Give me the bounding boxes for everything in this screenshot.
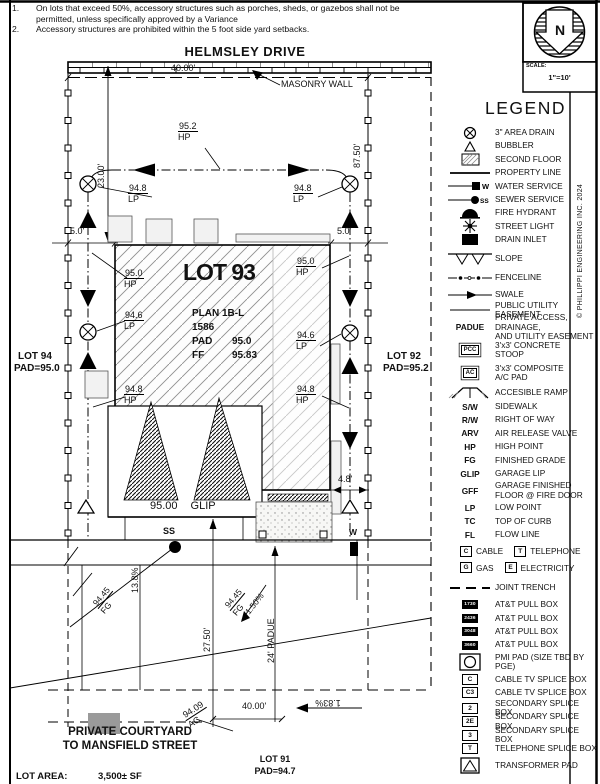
spot-hp-950-left: 95.0HP — [124, 268, 144, 289]
dim-27-50ft: 27.50' — [202, 628, 212, 652]
legend-item: R/WRIGHT OF WAY — [447, 413, 597, 426]
legend-item: FGFINISHED GRADE — [447, 453, 597, 466]
legend-item: PADUEPRIVATE ACCESS, DRAINAGE,AND UTILIT… — [447, 317, 597, 338]
legend-item-label: JOINT TRENCH — [495, 583, 556, 592]
street-name: HELMSLEY DRIVE — [150, 44, 340, 59]
legend-item-label: TELEPHONE SPLICE BOX — [495, 744, 597, 753]
legend-item: 3" AREA DRAIN — [447, 126, 597, 139]
legend-item-label: BUBBLER — [495, 141, 534, 150]
spot-hp-950-right: 95.0HP — [296, 256, 316, 277]
spot-hp-948-right: 94.8HP — [296, 384, 316, 405]
legend-item-label: SECONDARY SPLICE BOX — [495, 726, 597, 745]
legend-item-label: 3" AREA DRAIN — [495, 128, 555, 137]
legend-title: LEGEND — [485, 98, 566, 119]
slope-1-83pct: 1.83% — [305, 698, 351, 708]
dim-5ft-right: 5.0' — [337, 226, 351, 236]
legend-item-label: AT&T PULL BOX — [495, 627, 558, 636]
legend-item: AC3'x3' COMPOSITEA/C PAD — [447, 363, 597, 384]
water-service-icon: W — [447, 180, 493, 192]
legend-item: SECOND FLOOR — [447, 153, 597, 166]
legend-item-label: SIDEWALK — [495, 402, 538, 411]
legend-item: GFFGARAGE FINISHEDFLOOR @ FIRE DOOR — [447, 480, 597, 501]
legend-item-label: AT&T PULL BOX — [495, 614, 558, 623]
house-plan: PLAN 1B-L — [192, 309, 244, 319]
legend-item-label: CABLE TV SPLICE BOX — [495, 675, 587, 684]
legend-item-label: TOP OF CURB — [495, 517, 551, 526]
note-number: 2. — [12, 24, 36, 35]
bubbler-icon — [447, 140, 493, 153]
drain-inlet-icon — [447, 233, 493, 246]
legend-item: CCABLE TV SPLICE BOX — [447, 673, 597, 686]
legend-item: FENCELINE — [447, 271, 597, 286]
ramp-icon — [447, 385, 493, 399]
note-text: On lots that exceed 50%, accessory struc… — [36, 3, 436, 24]
fenceline-icon — [447, 272, 493, 284]
legend-item-label: HIGH POINT — [495, 442, 543, 451]
legend-item-label: TRANSFORMER PAD — [495, 761, 578, 770]
slope-13-8pct: 13.8% — [130, 567, 140, 593]
utility-letter-icon: C — [460, 546, 472, 557]
abbr-icon: GLIP — [447, 469, 493, 479]
abbr-icon: HP — [447, 442, 493, 452]
legend-item-label: SEWER SERVICE — [495, 195, 564, 204]
legend: LEGEND 3" AREA DRAINBUBBLERSECOND FLOORP… — [447, 126, 597, 774]
house-ff: FF95.83 — [192, 351, 204, 361]
legend-item: TRANSFORMER PAD — [447, 757, 597, 774]
spot-lp-946-right: 94.6LP — [296, 330, 316, 351]
legend-item: 2436AT&T PULL BOX — [447, 612, 597, 625]
pmi-icon — [447, 653, 493, 671]
abbr-icon: S/W — [447, 402, 493, 412]
dim-24ft-padue: 24' PADUE — [266, 618, 276, 663]
legend-item-label: SWALE — [495, 290, 524, 299]
legend-item-label: PMI PAD (SIZE TBD BY PGE) — [495, 653, 597, 672]
abbr-icon: PADUE — [447, 322, 493, 332]
legend-item-label: STREET LIGHT — [495, 222, 554, 231]
abbr-icon: LP — [447, 503, 493, 513]
legend-item: WWATER SERVICE — [447, 180, 597, 193]
legend-item-label: 3'x3' COMPOSITEA/C PAD — [495, 364, 564, 383]
legend-item: 3660AT&T PULL BOX — [447, 638, 597, 651]
abbr-icon: GFF — [447, 486, 493, 496]
lot-94-label: LOT 94PAD=95.0 — [14, 351, 60, 375]
scale-value: 1"=10' — [523, 73, 596, 82]
legend-item: SSSEWER SERVICE — [447, 193, 597, 206]
garage-lip-elevation: 95.00GLIP — [150, 501, 216, 511]
black-box-icon: 1730 — [447, 600, 493, 609]
utility-letter-icon: E — [505, 562, 517, 573]
note-2: 2. Accessory structures are prohibited w… — [12, 24, 492, 35]
water-service-label: W — [349, 527, 357, 537]
lot-area-label: LOT AREA: — [16, 772, 67, 782]
lot-92-label: LOT 92PAD=95.2 — [383, 351, 429, 375]
legend-item: 3SECONDARY SPLICE BOX — [447, 728, 597, 741]
swale-icon — [447, 289, 493, 301]
svg-text:W: W — [482, 182, 490, 191]
legend-item-label: AIR RELEASE VALVE — [495, 429, 577, 438]
legend-item-label: DRAIN INLET — [495, 235, 547, 244]
black-box-icon: 3660 — [447, 641, 493, 650]
sewer-service-label: SS — [163, 526, 175, 536]
legend-item: STREET LIGHT — [447, 220, 597, 233]
legend-item: PCC3'x3' CONCRETESTOOP — [447, 340, 597, 361]
courtyard-label: PRIVATE COURTYARD TO MANSFIELD STREET — [54, 726, 206, 753]
slope-icon — [447, 252, 493, 266]
legend-item-label: FENCELINE — [495, 273, 542, 282]
dim-87-50ft: 87.50' — [352, 144, 362, 168]
spot-hp-952: 95.2HP — [178, 121, 198, 142]
legend-item: LPLOW POINT — [447, 501, 597, 514]
abbr-icon: FG — [447, 455, 493, 465]
legend-item: S/WSIDEWALK — [447, 400, 597, 413]
north-arrow: N — [553, 22, 567, 38]
legend-item: FLFLOW LINE — [447, 528, 597, 541]
note-text: Accessory structures are prohibited with… — [36, 24, 436, 35]
pue-line-icon — [447, 305, 493, 315]
legend-item-label: FIRE HYDRANT — [495, 208, 556, 217]
dim-40ft-bottom: 40.00' — [242, 701, 266, 711]
utility-letter-icon: T — [514, 546, 526, 557]
transformer-icon — [447, 757, 493, 774]
scale-label: SCALE: — [526, 63, 546, 69]
legend-item-label: SECOND FLOOR — [495, 155, 561, 164]
spot-lp-946-left: 94.6LP — [124, 310, 144, 331]
legend-item-label: 3'x3' CONCRETESTOOP — [495, 341, 560, 360]
legend-item-label: WATER SERVICE — [495, 182, 563, 191]
wbox-icon: C3 — [447, 687, 493, 698]
legend-item: GLIPGARAGE LIP — [447, 467, 597, 480]
legend-item: TTELEPHONE SPLICE BOX — [447, 742, 597, 755]
dim-4-8ft: 4.8' — [338, 474, 352, 484]
legend-item: CCABLETTELEPHONE — [447, 544, 597, 557]
legend-item-label: ACCESIBLE RAMP — [495, 388, 568, 397]
box-label-icon: PCC — [447, 345, 493, 355]
legend-item-label: PROPERTY LINE — [495, 168, 561, 177]
legend-item-label: SLOPE — [495, 254, 523, 263]
spot-lp-948-right: 94.8LP — [293, 183, 313, 204]
legend-item: ARVAIR RELEASE VALVE — [447, 427, 597, 440]
house-plan-number: 1586 — [192, 323, 214, 333]
legend-item: PMI PAD (SIZE TBD BY PGE) — [447, 654, 597, 671]
utility-letter-icon: G — [460, 562, 472, 573]
note-number: 1. — [12, 3, 36, 24]
legend-item-label: FLOW LINE — [495, 530, 540, 539]
box-label-icon: AC — [447, 368, 493, 378]
abbr-icon: TC — [447, 516, 493, 526]
legend-item-label: RIGHT OF WAY — [495, 415, 555, 424]
legend-item: HPHIGH POINT — [447, 440, 597, 453]
legend-items: 3" AREA DRAINBUBBLERSECOND FLOORPROPERTY… — [447, 126, 597, 774]
black-box-icon: 2436 — [447, 614, 493, 623]
legend-item-label: PRIVATE ACCESS, DRAINAGE,AND UTILITY EAS… — [495, 313, 597, 341]
site-plan-page: 1. On lots that exceed 50%, accessory st… — [0, 0, 600, 784]
legend-item: TCTOP OF CURB — [447, 515, 597, 528]
abbr-icon: FL — [447, 530, 493, 540]
legend-item-label: CABLE TV SPLICE BOX — [495, 688, 587, 697]
dim-5ft-left: 5.0' — [70, 226, 84, 236]
dim-40ft-top: 40.00' — [171, 63, 195, 73]
street-light-icon — [447, 218, 493, 234]
property-line-icon — [447, 168, 493, 178]
note-1: 1. On lots that exceed 50%, accessory st… — [12, 3, 492, 24]
area-drain-icon — [447, 126, 493, 140]
legend-item-label: GARAGE LIP — [495, 469, 545, 478]
legend-item: PROPERTY LINE — [447, 166, 597, 179]
svg-text:SS: SS — [480, 198, 489, 205]
spot-lp-948-left: 94.8LP — [128, 183, 148, 204]
wbox-icon: 3 — [447, 730, 493, 741]
legend-item: DRAIN INLET — [447, 233, 597, 246]
general-notes: 1. On lots that exceed 50%, accessory st… — [12, 3, 492, 35]
black-box-icon: 3048 — [447, 627, 493, 636]
legend-item: BUBBLER — [447, 139, 597, 152]
wbox-icon: 2E — [447, 716, 493, 727]
legend-item: JOINT TRENCH — [447, 580, 597, 595]
spot-hp-948-left: 94.8HP — [124, 384, 144, 405]
abbr-icon: ARV — [447, 428, 493, 438]
legend-item-label: AT&T PULL BOX — [495, 600, 558, 609]
joint-trench-icon — [447, 582, 493, 594]
lot-93-title: LOT 93 — [183, 267, 255, 277]
legend-item-label: GARAGE FINISHEDFLOOR @ FIRE DOOR — [495, 481, 583, 500]
wbox-icon: C — [447, 674, 493, 685]
second-floor-icon — [447, 153, 493, 166]
legend-item: GGASEELECTRICITY — [447, 561, 597, 574]
legend-item-label: AT&T PULL BOX — [495, 640, 558, 649]
legend-item: SLOPE — [447, 252, 597, 267]
masonry-wall-label: MASONRY WALL — [281, 79, 353, 89]
legend-item: ACCESIBLE RAMP — [447, 385, 597, 400]
dim-23ft: 23.00' — [96, 164, 106, 188]
legend-item: 1730AT&T PULL BOX — [447, 598, 597, 611]
abbr-icon: R/W — [447, 415, 493, 425]
legend-item-label: FINISHED GRADE — [495, 456, 566, 465]
legend-item: 3048AT&T PULL BOX — [447, 625, 597, 638]
house-pad: PAD95.0 — [192, 337, 212, 347]
sewer-service-icon: SS — [447, 194, 493, 206]
wbox-icon: T — [447, 743, 493, 754]
legend-item-label: LOW POINT — [495, 503, 542, 512]
lot-area-value: 3,500± SF — [98, 772, 142, 782]
lot-91-label: LOT 91PAD=94.7 — [248, 754, 302, 777]
wbox-icon: 2 — [447, 703, 493, 714]
